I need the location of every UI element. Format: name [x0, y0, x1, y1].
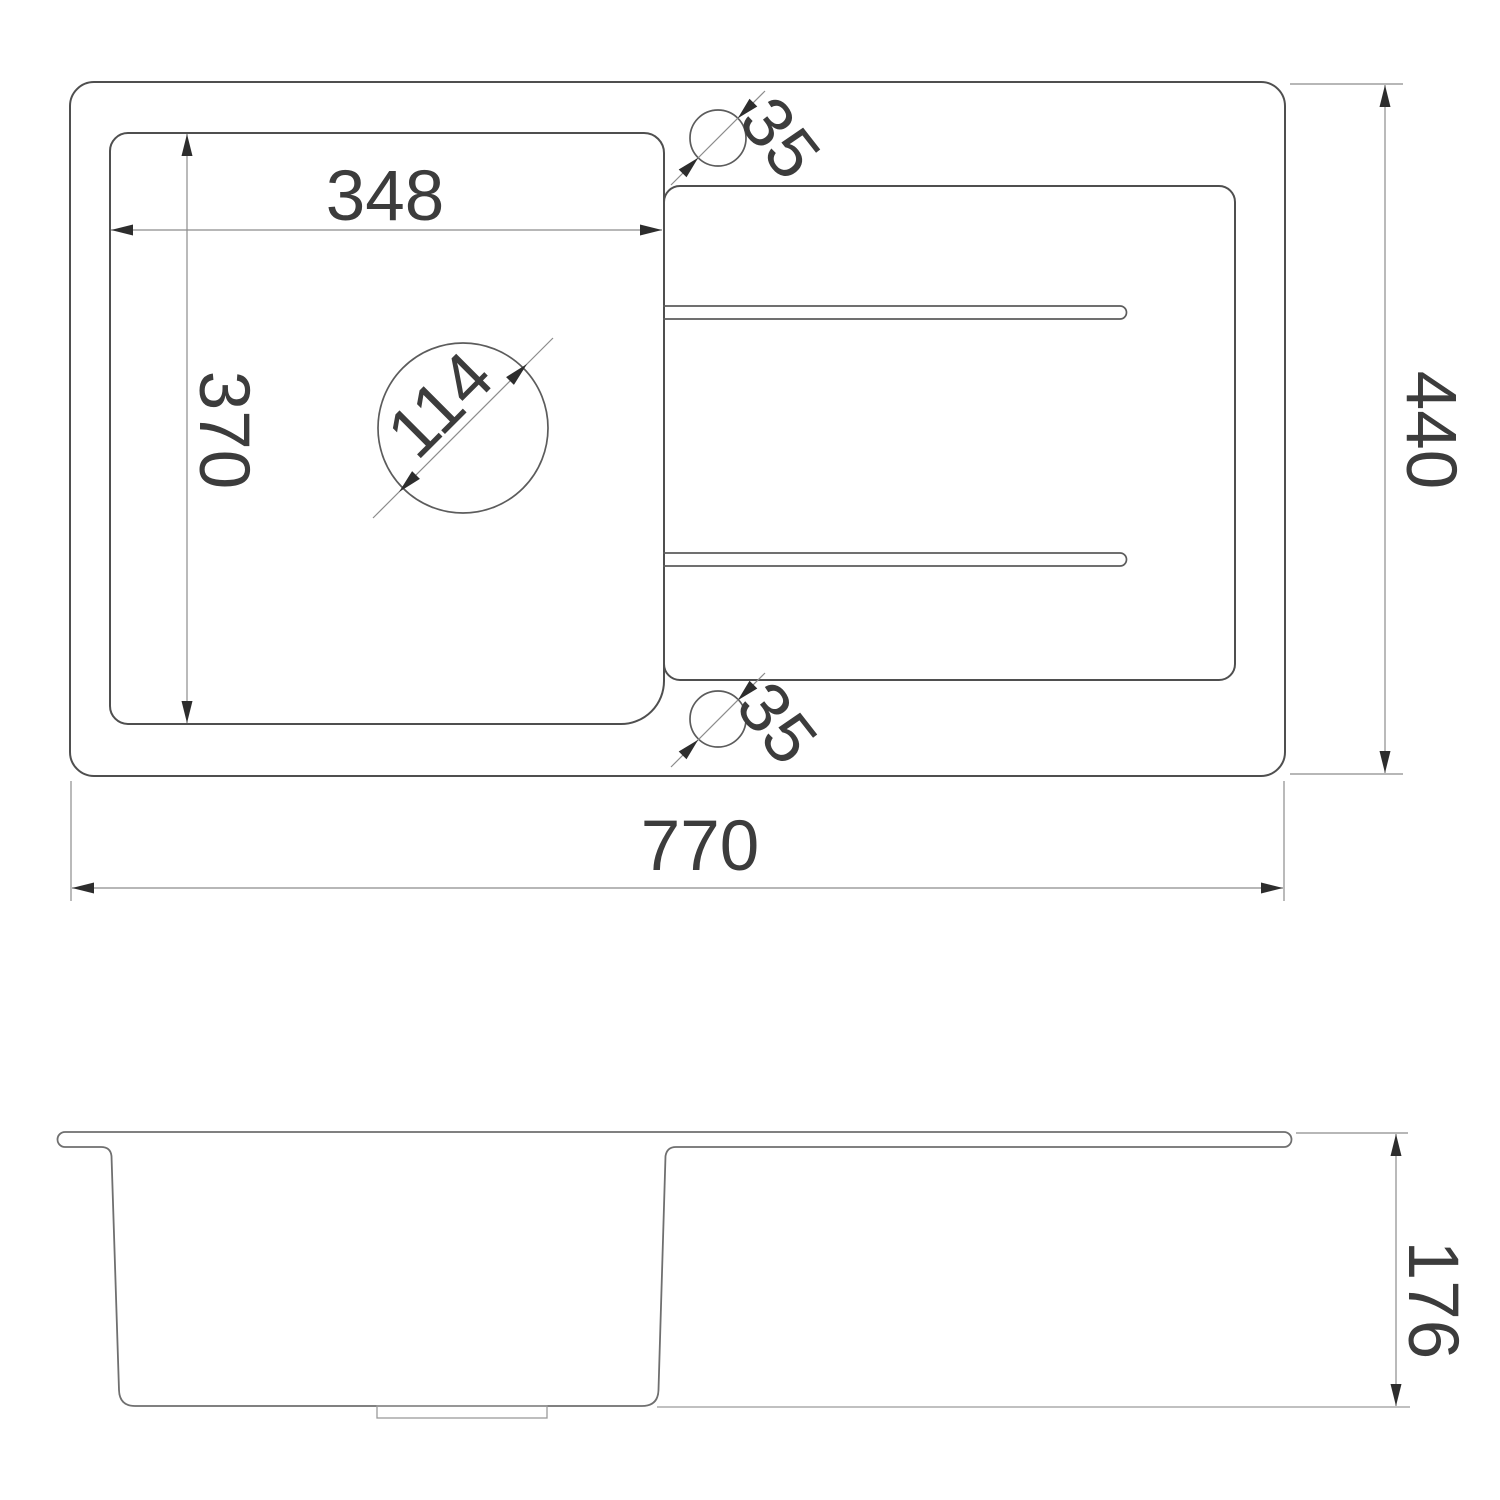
- drainer-groove-2: [663, 553, 1127, 566]
- side-profile-outline: [58, 1132, 1292, 1406]
- top-view: 114 35 35 3: [70, 82, 1470, 901]
- dim-bowl-height: 176: [1296, 1133, 1472, 1406]
- dim-bowl-height-arrow-bottom: [1391, 1384, 1402, 1406]
- dim-label-bowl-width: 348: [326, 157, 444, 236]
- dim-label-drain-diameter: 114: [372, 337, 508, 473]
- dim-bowl-depth-arrow-bottom: [182, 701, 193, 723]
- tap-hole-bottom: 35: [671, 668, 832, 779]
- dim-label-tap-hole-top: 35: [724, 83, 835, 194]
- dim-bowl-depth-arrow-top: [182, 134, 193, 156]
- dim-bowl-width: 348: [111, 157, 662, 236]
- drain-hole: 114: [372, 337, 553, 518]
- dim-label-overall-depth: 440: [1391, 371, 1470, 489]
- side-view: 176: [58, 1132, 1473, 1418]
- drawing-canvas: 114 35 35 3: [0, 0, 1500, 1500]
- dim-label-tap-hole-bottom: 35: [721, 668, 832, 779]
- dim-overall-width: 770: [71, 781, 1284, 901]
- dim-bowl-width-arrow-left: [111, 225, 133, 236]
- sink-technical-drawing: 114 35 35 3: [0, 0, 1500, 1500]
- tap-hole-top: 35: [671, 83, 835, 194]
- dim-bowl-width-arrow-right: [640, 225, 662, 236]
- drain-boss: [377, 1406, 547, 1418]
- dim-bowl-depth: 370: [182, 134, 264, 723]
- dim-overall-width-arrow-right: [1261, 883, 1283, 894]
- dim-label-overall-width: 770: [641, 807, 759, 886]
- drainer-outline: [664, 186, 1235, 680]
- dim-label-bowl-height: 176: [1393, 1241, 1472, 1359]
- dim-overall-depth: 440: [1290, 84, 1470, 774]
- dim-overall-depth-arrow-bottom: [1380, 751, 1391, 773]
- drainer-groove-1: [663, 306, 1127, 319]
- dim-overall-depth-arrow-top: [1380, 85, 1391, 107]
- dim-bowl-height-arrow-top: [1391, 1134, 1402, 1156]
- dim-label-bowl-depth: 370: [184, 371, 263, 489]
- dim-overall-width-arrow-left: [72, 883, 94, 894]
